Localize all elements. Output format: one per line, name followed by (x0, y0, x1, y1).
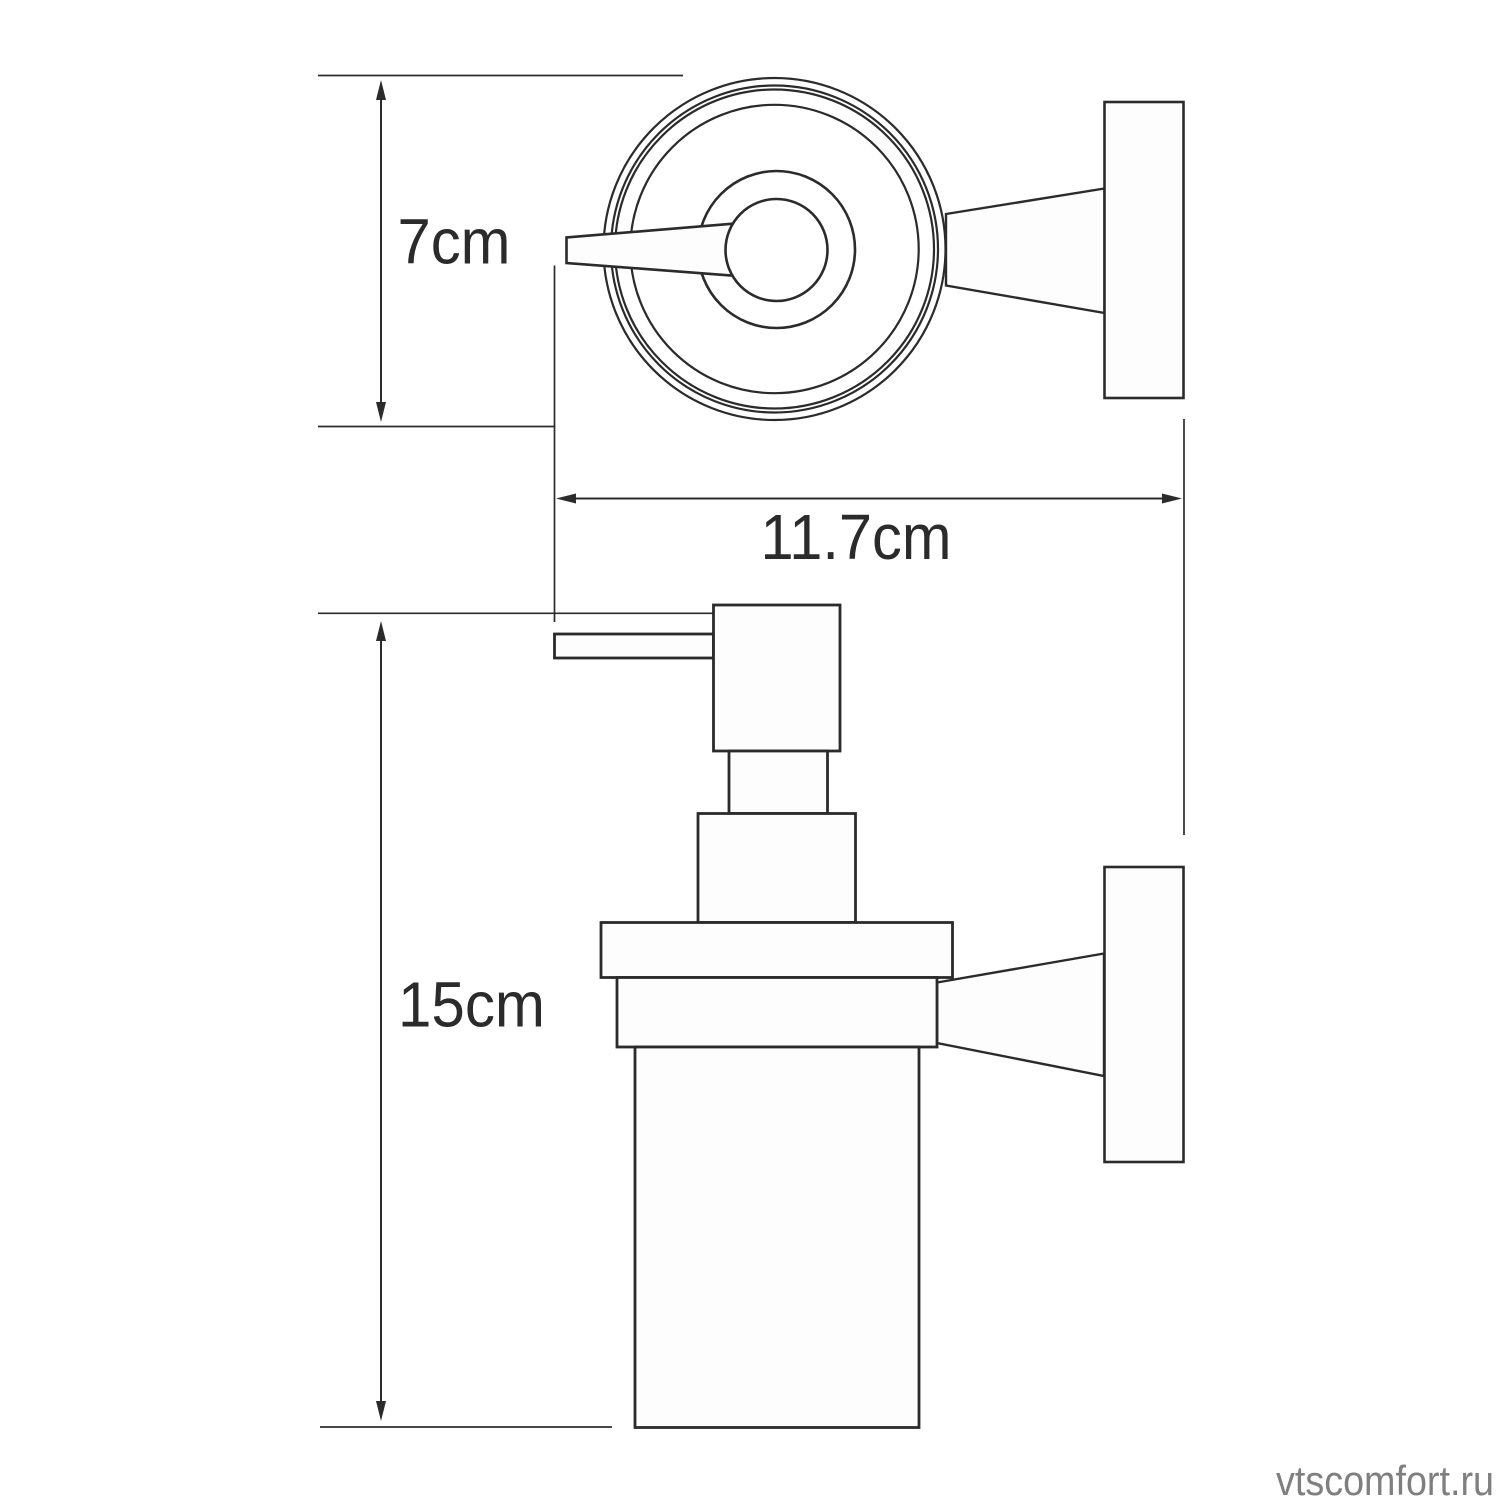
svg-text:vtscomfort.ru: vtscomfort.ru (1276, 1457, 1494, 1504)
svg-text:11.7cm: 11.7cm (761, 501, 952, 573)
svg-text:7cm: 7cm (398, 206, 511, 278)
svg-text:15cm: 15cm (398, 969, 545, 1041)
